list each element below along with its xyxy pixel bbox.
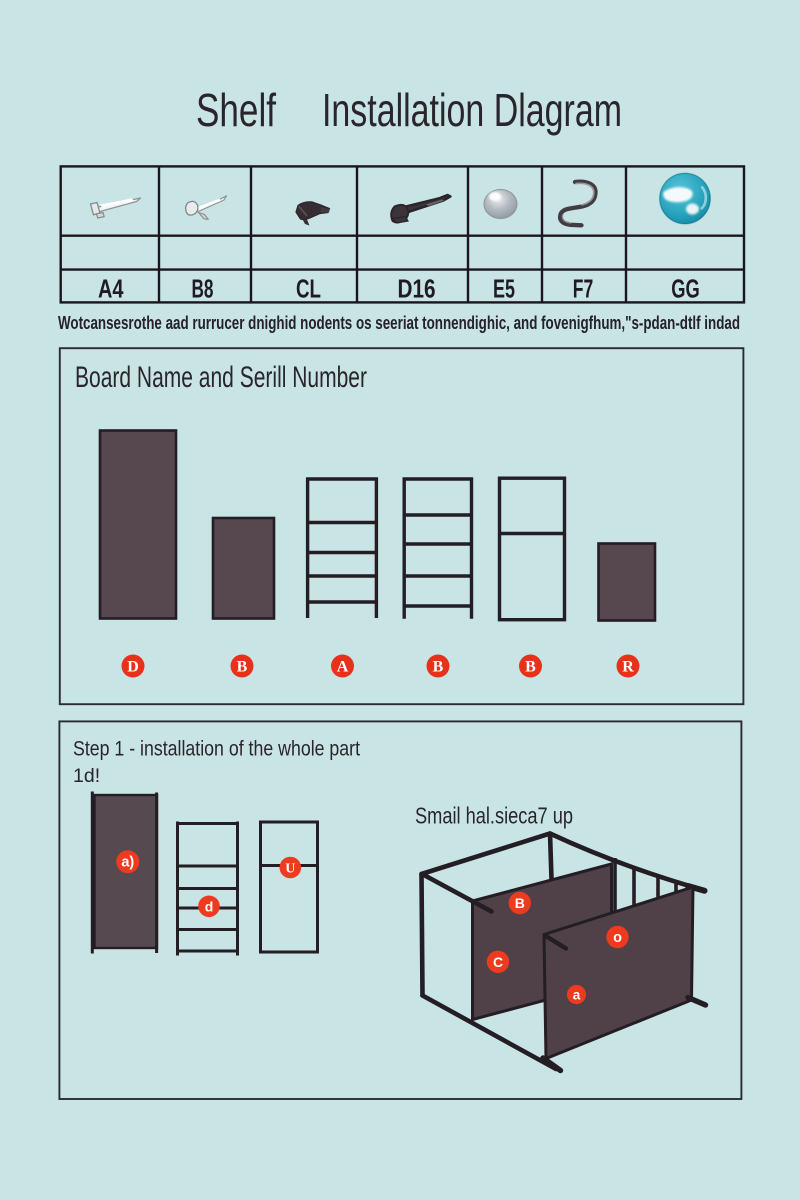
svg-text:GG: GG [671, 276, 700, 304]
svg-text:B: B [433, 659, 444, 676]
svg-text:R: R [622, 659, 634, 676]
svg-text:a): a) [121, 855, 134, 871]
svg-text:Installation Dlagram: Installation Dlagram [322, 84, 622, 136]
svg-text:Step 1 - installation of the w: Step 1 - installation of the whole part [73, 738, 360, 761]
svg-text:B: B [237, 659, 248, 676]
svg-text:D16: D16 [398, 276, 436, 304]
svg-text:B8: B8 [192, 276, 214, 304]
svg-text:Smail hal.sieca7 up: Smail hal.sieca7 up [415, 803, 573, 829]
svg-text:B: B [515, 895, 525, 911]
svg-text:B: B [525, 659, 536, 676]
svg-text:1d!: 1d! [73, 765, 100, 787]
svg-text:o: o [613, 930, 622, 946]
svg-text:A4: A4 [98, 276, 124, 304]
svg-text:D: D [127, 659, 139, 676]
svg-text:E5: E5 [493, 276, 515, 304]
svg-text:U: U [285, 862, 295, 877]
svg-text:Shelf: Shelf [196, 84, 276, 136]
svg-text:F7: F7 [573, 276, 594, 304]
svg-text:A: A [337, 659, 349, 676]
svg-text:Wotcansesrothe aad rurrucer dn: Wotcansesrothe aad rurrucer dnighid node… [58, 312, 740, 333]
svg-text:Board Name and Serill Number: Board Name and Serill Number [75, 361, 367, 394]
svg-text:d: d [205, 898, 214, 914]
svg-text:CL: CL [296, 276, 321, 304]
svg-text:C: C [493, 954, 503, 970]
svg-text:a: a [573, 987, 581, 1002]
